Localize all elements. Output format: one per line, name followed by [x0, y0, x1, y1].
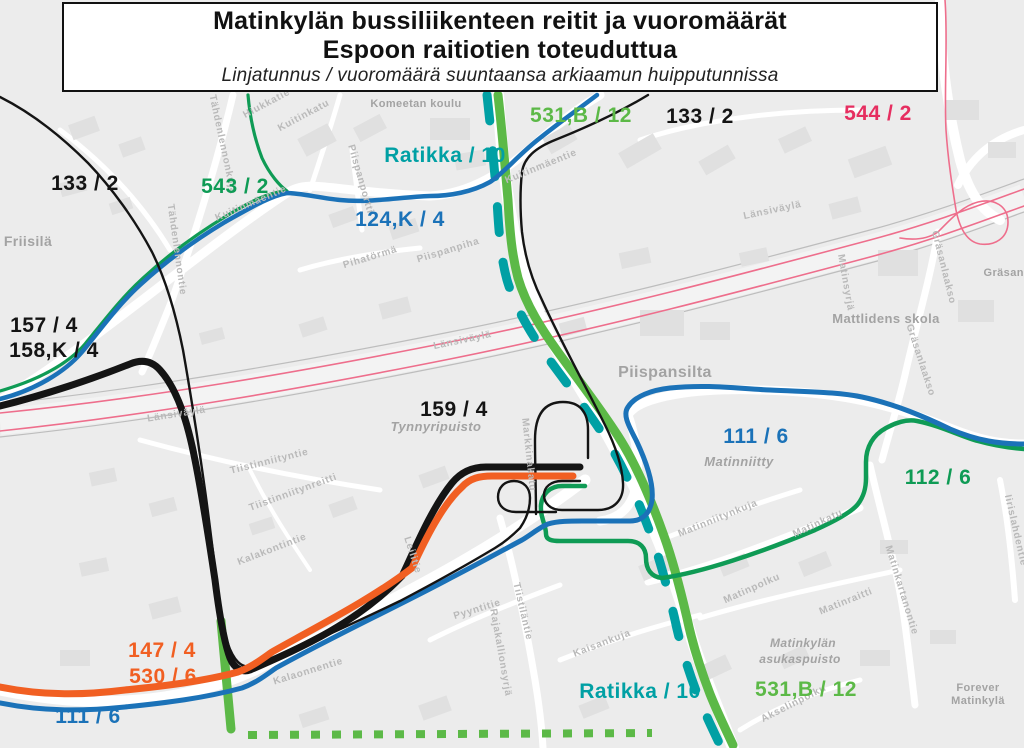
place-label: Tynnyripuisto — [391, 419, 482, 434]
place-label: Mattlidens skola — [832, 311, 940, 326]
place-label: Matinniitty — [704, 454, 774, 469]
route-frequency-label: Ratikka / 10 — [384, 144, 506, 167]
place-label: Matinkylä — [951, 695, 1005, 707]
page-title-line-2: Espoon raitiotien toteuduttua — [323, 36, 677, 64]
page-title-line-1: Matinkylän bussiliikenteen reitit ja vuo… — [213, 7, 787, 35]
route-frequency-label: 531,B / 12 — [755, 678, 857, 701]
place-label: Matinkylän — [770, 636, 836, 650]
place-label: Gräsanlaakso — [984, 267, 1024, 279]
route-frequency-label: 124,K / 4 — [355, 208, 445, 231]
place-label: Piispansilta — [618, 364, 712, 381]
route-frequency-label: 530 / 6 — [129, 665, 197, 688]
route-frequency-label: 111 / 6 — [55, 705, 120, 728]
transit-map-page: HiukkatieKuitinkatuTähdenlennonkujaTähde… — [0, 0, 1024, 748]
place-label: Forever — [956, 682, 999, 694]
route-frequency-label: 147 / 4 — [128, 639, 196, 662]
route-frequency-label: 111 / 6 — [723, 425, 788, 448]
route-frequency-label: 544 / 2 — [844, 102, 912, 125]
route-frequency-label: 531,B / 12 — [530, 104, 632, 127]
route-frequency-label: 158,K / 4 — [9, 339, 99, 362]
route-frequency-label: Ratikka / 10 — [579, 680, 701, 703]
route-frequency-label: 133 / 2 — [51, 172, 119, 195]
transit-map: HiukkatieKuitinkatuTähdenlennonkujaTähde… — [0, 0, 1024, 748]
route-frequency-label: 112 / 6 — [905, 466, 972, 489]
route-frequency-label: 159 / 4 — [420, 398, 488, 421]
title-box: Matinkylän bussiliikenteen reitit ja vuo… — [62, 2, 938, 92]
place-label: Friisilä — [4, 233, 52, 249]
route-frequency-label: 157 / 4 — [10, 314, 78, 337]
place-label: Komeetan koulu — [370, 98, 461, 110]
page-subtitle: Linjatunnus / vuoromäärä suuntaansa arki… — [221, 65, 778, 87]
place-label: asukaspuisto — [759, 652, 841, 666]
route-frequency-label: 543 / 2 — [201, 175, 269, 198]
route-frequency-label: 133 / 2 — [666, 105, 734, 128]
